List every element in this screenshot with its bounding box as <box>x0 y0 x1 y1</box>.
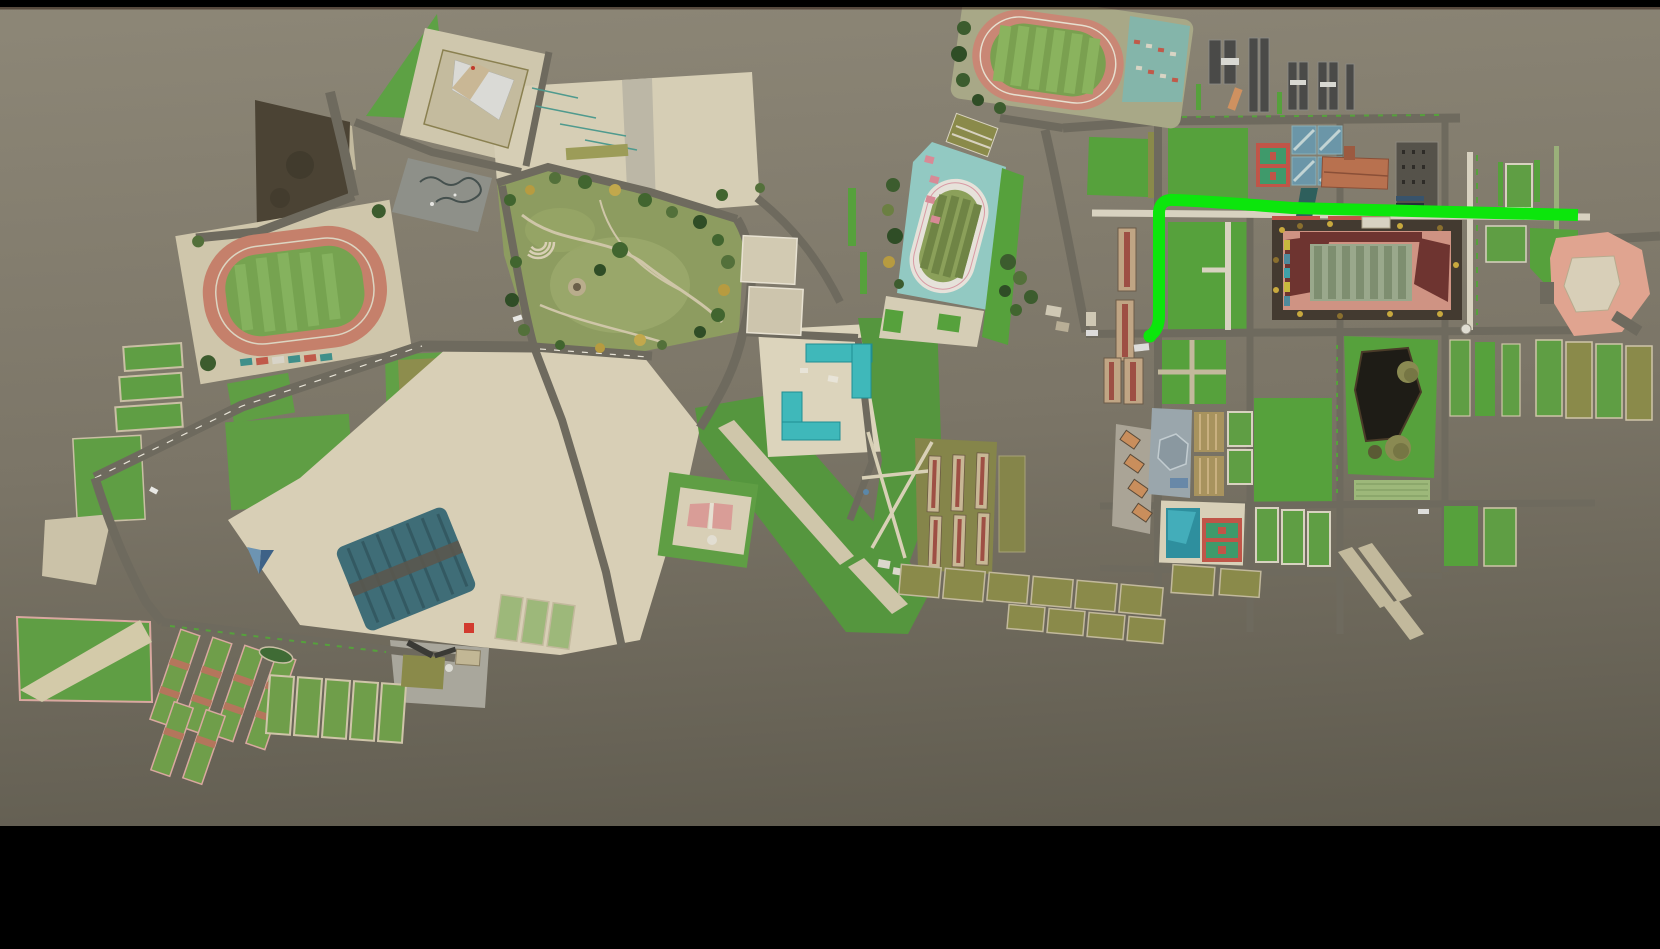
e-dark-window-2 <box>1412 150 1415 154</box>
v-court-3 <box>322 679 350 739</box>
olive-field-8 <box>1047 608 1085 635</box>
e-dark-window-8 <box>1412 180 1415 184</box>
park-tree-7 <box>666 206 678 218</box>
rs-below-1 <box>1486 226 1526 262</box>
olive-field-2 <box>943 568 985 601</box>
sp-green-1-notch <box>1218 527 1226 534</box>
es-autumn-6 <box>1297 311 1303 317</box>
pool-white-2 <box>800 368 808 373</box>
es-stand-5 <box>1284 296 1290 306</box>
pond-tree-1-shade <box>1404 368 1418 382</box>
e-dark-window-5 <box>1412 165 1415 169</box>
se-green-1 <box>1444 506 1478 566</box>
e-slab-bridge-d <box>1320 82 1336 87</box>
es-autumn-2 <box>1297 223 1303 229</box>
olive-field-10 <box>1127 616 1165 643</box>
v-court-1 <box>266 675 294 735</box>
park-tree-18 <box>518 324 530 336</box>
park-tree-5 <box>609 184 621 196</box>
es-stripe-7 <box>1398 246 1406 299</box>
ts-tree-3 <box>887 228 903 244</box>
ts-tree-4 <box>883 256 895 268</box>
es-autumn-9 <box>1437 311 1443 317</box>
e-trees-1 <box>1000 254 1016 270</box>
v-court-2 <box>294 677 322 737</box>
es-maroon-top <box>1300 232 1422 242</box>
e-slab-a1 <box>1209 40 1221 84</box>
ne-dot-2 <box>1146 44 1152 49</box>
sc-strip-2 <box>1282 510 1304 564</box>
e-dark-window-3 <box>1422 150 1425 154</box>
rs-pole <box>1554 146 1559 238</box>
screenshot-root <box>0 0 1660 949</box>
rs-court-1 <box>1506 164 1532 208</box>
rs-se-green-4 <box>1626 346 1652 420</box>
park-tree-13 <box>694 326 706 338</box>
es-autumn-5 <box>1437 225 1443 231</box>
ne-tree-3 <box>956 73 970 87</box>
ws-stand-3 <box>272 356 285 364</box>
d-tree-2 <box>755 183 765 193</box>
sp-green-2-notch <box>1218 546 1226 554</box>
ts-tree-1 <box>886 178 900 192</box>
letterbox-bottom <box>0 826 1660 949</box>
park-tree-17 <box>505 293 519 307</box>
e-red-a-notch-1 <box>1270 152 1276 160</box>
olive-field-9 <box>1087 612 1125 639</box>
e-dark-window-7 <box>1402 180 1405 184</box>
e-dark-window-4 <box>1402 165 1405 169</box>
park-lawn2 <box>525 208 595 252</box>
park-tree-9 <box>712 234 724 246</box>
es-building-top <box>1362 217 1390 228</box>
e-dark-window-1 <box>1402 150 1405 154</box>
park-tree-16 <box>510 256 522 268</box>
pond-tree-3 <box>1368 445 1382 459</box>
rs-se-green-2 <box>1566 342 1592 418</box>
ne-tree-4 <box>972 94 984 106</box>
red-marker <box>464 623 474 633</box>
e-lawn-nw <box>1087 137 1153 197</box>
ne-tree-1 <box>957 21 971 35</box>
park-tree-12 <box>711 308 725 322</box>
es-autumn-4 <box>1397 223 1403 229</box>
se-green-2 <box>1484 508 1516 566</box>
w-plots-west-1 <box>123 343 183 371</box>
white-marker-2 <box>1418 509 1429 514</box>
e-dark-window-9 <box>1422 180 1425 184</box>
pool-building-L2b <box>782 422 840 440</box>
e-trees-5 <box>1010 304 1022 316</box>
ss-court-2 <box>1228 450 1252 484</box>
route-end-tip <box>1144 330 1157 343</box>
es-stripe-5 <box>1370 246 1378 299</box>
es-autumn-1 <box>1279 227 1285 233</box>
ts-tree-5 <box>894 279 904 289</box>
e-orange-chimney <box>1344 146 1355 160</box>
e-trees-3 <box>999 285 1011 297</box>
e-slab-e <box>1346 64 1354 110</box>
es-stand-1 <box>1284 240 1290 250</box>
es-stripe-6 <box>1384 246 1392 299</box>
ne-dot-1 <box>1134 40 1140 45</box>
ts-tree-2 <box>882 204 894 216</box>
e-red-a-notch-2 <box>1270 172 1276 180</box>
ss-court-1 <box>1228 412 1252 446</box>
es-stripe-1 <box>1314 246 1322 299</box>
ts-greenstick-1 <box>848 188 856 246</box>
map-canvas[interactable] <box>0 0 1660 949</box>
es-stand-3 <box>1284 268 1290 278</box>
e-dorm-w4-roof <box>1130 362 1136 401</box>
rs-stick-1 <box>1498 162 1503 206</box>
rs-ne-green-3 <box>1502 344 1520 416</box>
er-horizontal-2 <box>1086 330 1600 334</box>
olive-field-3 <box>987 572 1029 603</box>
park-tree-6 <box>638 193 652 207</box>
ts-lawn-b1 <box>883 309 904 333</box>
rs-stick-2 <box>1534 160 1540 202</box>
ws-stand-2 <box>256 357 269 365</box>
parking-building <box>455 649 480 666</box>
park-tree-8 <box>693 215 707 229</box>
ne-tree-5 <box>994 102 1006 114</box>
es-autumn-3 <box>1327 221 1333 227</box>
e-dark-stripe-1 <box>1396 196 1424 201</box>
ne-dot-4 <box>1170 52 1176 57</box>
e-dorm-w3-roof <box>1109 362 1114 400</box>
olive-field-6 <box>1119 584 1163 616</box>
es-autumn-12 <box>1453 262 1459 268</box>
es-autumn-11 <box>1273 287 1279 293</box>
letterbox-top-accent-line <box>0 7 1660 10</box>
ws-stand-4 <box>288 355 301 363</box>
ne-dot-8 <box>1172 78 1178 83</box>
w-building1-red-detail <box>471 66 475 70</box>
ne-tree-2 <box>951 46 967 62</box>
w-skate-dot2 <box>454 194 457 197</box>
es-autumn-10 <box>1273 257 1279 263</box>
d-tree-1 <box>716 189 728 201</box>
olive-field-7 <box>1007 604 1045 631</box>
park-tree-11 <box>718 284 730 296</box>
parking-dot <box>445 664 453 672</box>
ne-deck <box>1122 16 1190 102</box>
es-stand-2 <box>1284 254 1290 264</box>
pond-tree-2-shade <box>1393 443 1409 459</box>
e-lawn-w-route <box>1168 222 1248 330</box>
park-tree-14 <box>657 340 667 350</box>
ss-bigfield <box>1254 398 1332 506</box>
e-slab-b1 <box>1249 38 1258 112</box>
ne-dot-3 <box>1158 48 1164 53</box>
dorm-strip-east <box>999 456 1025 552</box>
olive-e1 <box>1171 565 1215 596</box>
park-tree-20 <box>595 343 605 353</box>
park-tree-3 <box>549 172 561 184</box>
theater-seats-left <box>687 503 710 528</box>
es-stripe-2 <box>1328 246 1336 299</box>
ws-stand-6 <box>320 353 333 361</box>
ne-dot-5 <box>1136 66 1142 71</box>
rs-ne-green-2 <box>1475 342 1495 416</box>
e-green-stick-1 <box>1196 84 1201 110</box>
e-dorm-w2-roof <box>1122 304 1128 357</box>
e-lawn-n1 <box>1168 128 1248 200</box>
ts-lawn-b2 <box>937 314 961 333</box>
es-stand-4 <box>1284 282 1290 292</box>
v-court-4 <box>350 681 378 741</box>
park-tree-1 <box>504 194 516 206</box>
ts-greenstick-2 <box>860 252 867 294</box>
olive-field-5 <box>1075 580 1117 611</box>
w-forest-shade2 <box>270 188 290 208</box>
e-slab-bridge-a <box>1221 58 1239 65</box>
sc-strip-1 <box>1256 508 1278 562</box>
olive-field-4 <box>1031 576 1073 607</box>
park-tree-15 <box>634 334 646 346</box>
rs-se-green-3 <box>1596 344 1622 418</box>
olive-e2 <box>1219 569 1261 598</box>
salmon-road-1 <box>1540 282 1554 304</box>
park-tree-2 <box>525 185 535 195</box>
route-side-marker <box>1086 330 1098 336</box>
es-autumn-8 <box>1387 311 1393 317</box>
w-skate-dot1 <box>430 202 434 206</box>
park-tree-10 <box>721 255 735 269</box>
e-slab-bridge-c <box>1290 80 1306 85</box>
park-mound-center <box>573 283 581 291</box>
w-forest-shade <box>286 151 314 179</box>
theater-seats-right <box>711 503 733 530</box>
es-autumn-7 <box>1337 313 1343 319</box>
e-slab-c2 <box>1299 62 1308 110</box>
w-plots-west-3 <box>115 403 183 432</box>
e-kiosk <box>1086 312 1096 326</box>
letterbox-top <box>0 0 1660 7</box>
park-tree-19 <box>555 340 565 350</box>
e-slab-b2 <box>1260 38 1269 112</box>
park-tree-21 <box>612 242 628 258</box>
ss-blue-patch <box>1170 478 1188 488</box>
v-court-5 <box>378 683 406 743</box>
sc-strip-3 <box>1308 512 1330 566</box>
parking-olive <box>401 655 445 690</box>
es-stripe-4 <box>1356 246 1364 299</box>
park-tree-22 <box>594 264 606 276</box>
band-pool-dot <box>863 489 869 495</box>
e-dorm-w1-roof <box>1124 232 1130 287</box>
park-tree-4 <box>578 175 592 189</box>
d-building-2 <box>747 287 803 336</box>
ne-dot-6 <box>1148 70 1154 75</box>
es-stripe-3 <box>1342 246 1350 299</box>
e-trees-4 <box>1024 290 1038 304</box>
ws-stand-1 <box>240 358 253 366</box>
e-slab-c1 <box>1288 62 1297 110</box>
rs-ne-green-1 <box>1450 340 1470 416</box>
rs-se-green-1 <box>1536 340 1562 416</box>
ws-stand-5 <box>304 354 317 362</box>
white-sphere <box>1461 324 1471 334</box>
theater-stage <box>707 535 717 545</box>
e-trees-2 <box>1013 271 1027 285</box>
olive-field-1 <box>899 564 941 597</box>
e-green-stick-2 <box>1277 92 1282 114</box>
w-plots-west-2 <box>119 373 183 401</box>
e-dark-window-6 <box>1422 165 1425 169</box>
ne-dot-7 <box>1160 74 1166 79</box>
d-building-1 <box>741 236 797 285</box>
pool-building-L1b <box>852 344 871 398</box>
